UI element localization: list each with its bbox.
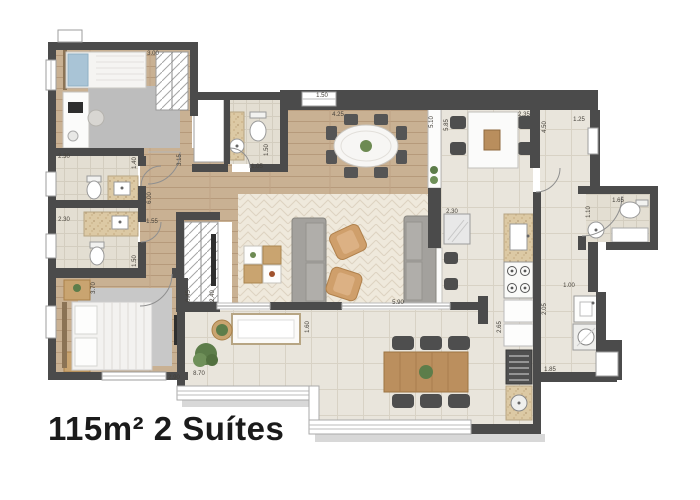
bin-icon xyxy=(68,131,78,141)
grill-icon xyxy=(506,350,532,384)
terrace-chair xyxy=(392,336,414,350)
dining-chair xyxy=(374,114,388,125)
laptop-icon xyxy=(68,102,83,113)
toilet-icon xyxy=(620,202,640,218)
dimension-label: 1.10 xyxy=(586,206,592,218)
dining-chair xyxy=(344,114,358,125)
bed-headboard xyxy=(62,302,67,368)
centerpiece-plant xyxy=(419,365,433,379)
railing xyxy=(177,386,317,400)
dimension-label: 5.85 xyxy=(444,119,450,131)
dimension-label: 2.30 xyxy=(58,217,70,223)
window xyxy=(596,352,618,376)
terrace-chair xyxy=(420,394,442,408)
dimension-label: 5.90 xyxy=(392,300,404,306)
island-tray xyxy=(484,130,500,150)
coffee-table-icon xyxy=(244,265,262,283)
dimension-label: 1.05 xyxy=(251,164,263,170)
ac-box xyxy=(58,30,82,42)
railing xyxy=(309,386,319,424)
cabinet xyxy=(504,300,533,322)
stool xyxy=(444,278,458,290)
railing xyxy=(309,420,471,434)
dining-chair xyxy=(396,126,407,140)
stool xyxy=(450,116,466,129)
shaft xyxy=(194,98,224,162)
area-caption: 115m² 2 Suítes xyxy=(48,410,284,448)
window xyxy=(46,172,56,196)
terrace-chair xyxy=(448,394,470,408)
terrace-chair xyxy=(448,336,470,350)
dimension-label: 1.00 xyxy=(563,283,575,289)
dimension-label: 1.25 xyxy=(573,117,585,123)
tv-icon xyxy=(211,234,216,286)
dimension-label: 3.00 xyxy=(147,51,159,57)
dimension-label: 2.90 xyxy=(168,375,180,381)
bed-pillow xyxy=(75,338,97,366)
plant-icon xyxy=(430,166,438,174)
stove-icon xyxy=(504,262,533,298)
plant-icon xyxy=(430,176,438,184)
dimension-label: 2.05 xyxy=(542,303,548,315)
toilet-icon xyxy=(90,247,104,265)
dimension-label: 1.50 xyxy=(264,144,270,156)
terrace-chair xyxy=(420,336,442,350)
dimension-label: 2.35 xyxy=(518,112,530,118)
coffee-table-icon xyxy=(263,246,281,264)
dimension-label: 2.40 xyxy=(210,290,216,302)
toilet-icon xyxy=(87,181,101,199)
dimension-label: 4.50 xyxy=(542,121,548,133)
dining-chair xyxy=(326,126,337,140)
dimension-label: 5.10 xyxy=(429,116,435,128)
dimension-label: 0.45 xyxy=(186,290,192,302)
window xyxy=(46,306,56,338)
dimension-label: 1.55 xyxy=(146,219,158,225)
bed-pillow xyxy=(75,306,97,334)
duct xyxy=(588,128,598,154)
dimension-label: 3.70 xyxy=(91,282,97,294)
dimension-label: 1.60 xyxy=(305,321,311,333)
stool xyxy=(450,142,466,155)
bath1-furniture xyxy=(87,176,138,202)
desk-chair-icon xyxy=(88,110,104,126)
floor-plan: 3.002.301.402.301.503.151.051.501.504.25… xyxy=(0,0,700,500)
centerpiece-plant xyxy=(360,140,372,152)
dimension-label: 4.25 xyxy=(332,112,344,118)
dimension-label: 6.00 xyxy=(147,192,153,204)
dimension-label: 3.15 xyxy=(177,154,183,166)
dimension-label: 1.65 xyxy=(612,198,624,204)
dimension-label: 1.50 xyxy=(316,93,328,99)
vanity-counter xyxy=(84,212,138,236)
toilet-icon xyxy=(250,121,266,141)
dining-chair xyxy=(344,167,358,178)
dining-chair xyxy=(374,167,388,178)
kitchen-sink-icon xyxy=(510,224,527,250)
dining-chair xyxy=(396,150,407,164)
dimension-label: 1.50 xyxy=(132,255,138,267)
cabinet xyxy=(504,324,533,346)
dimension-label: 2.30 xyxy=(58,154,70,160)
dimension-label: 8.70 xyxy=(193,371,205,377)
dimension-label: 1.40 xyxy=(132,157,138,169)
stool xyxy=(444,252,458,264)
terrace-chair xyxy=(392,394,414,408)
dimension-label: 2.65 xyxy=(497,321,503,333)
dimension-label: 2.30 xyxy=(446,209,458,215)
dimension-label: 1.85 xyxy=(544,367,556,373)
bath-counter xyxy=(612,228,648,242)
bed-pillow xyxy=(68,54,88,86)
window xyxy=(46,234,56,258)
